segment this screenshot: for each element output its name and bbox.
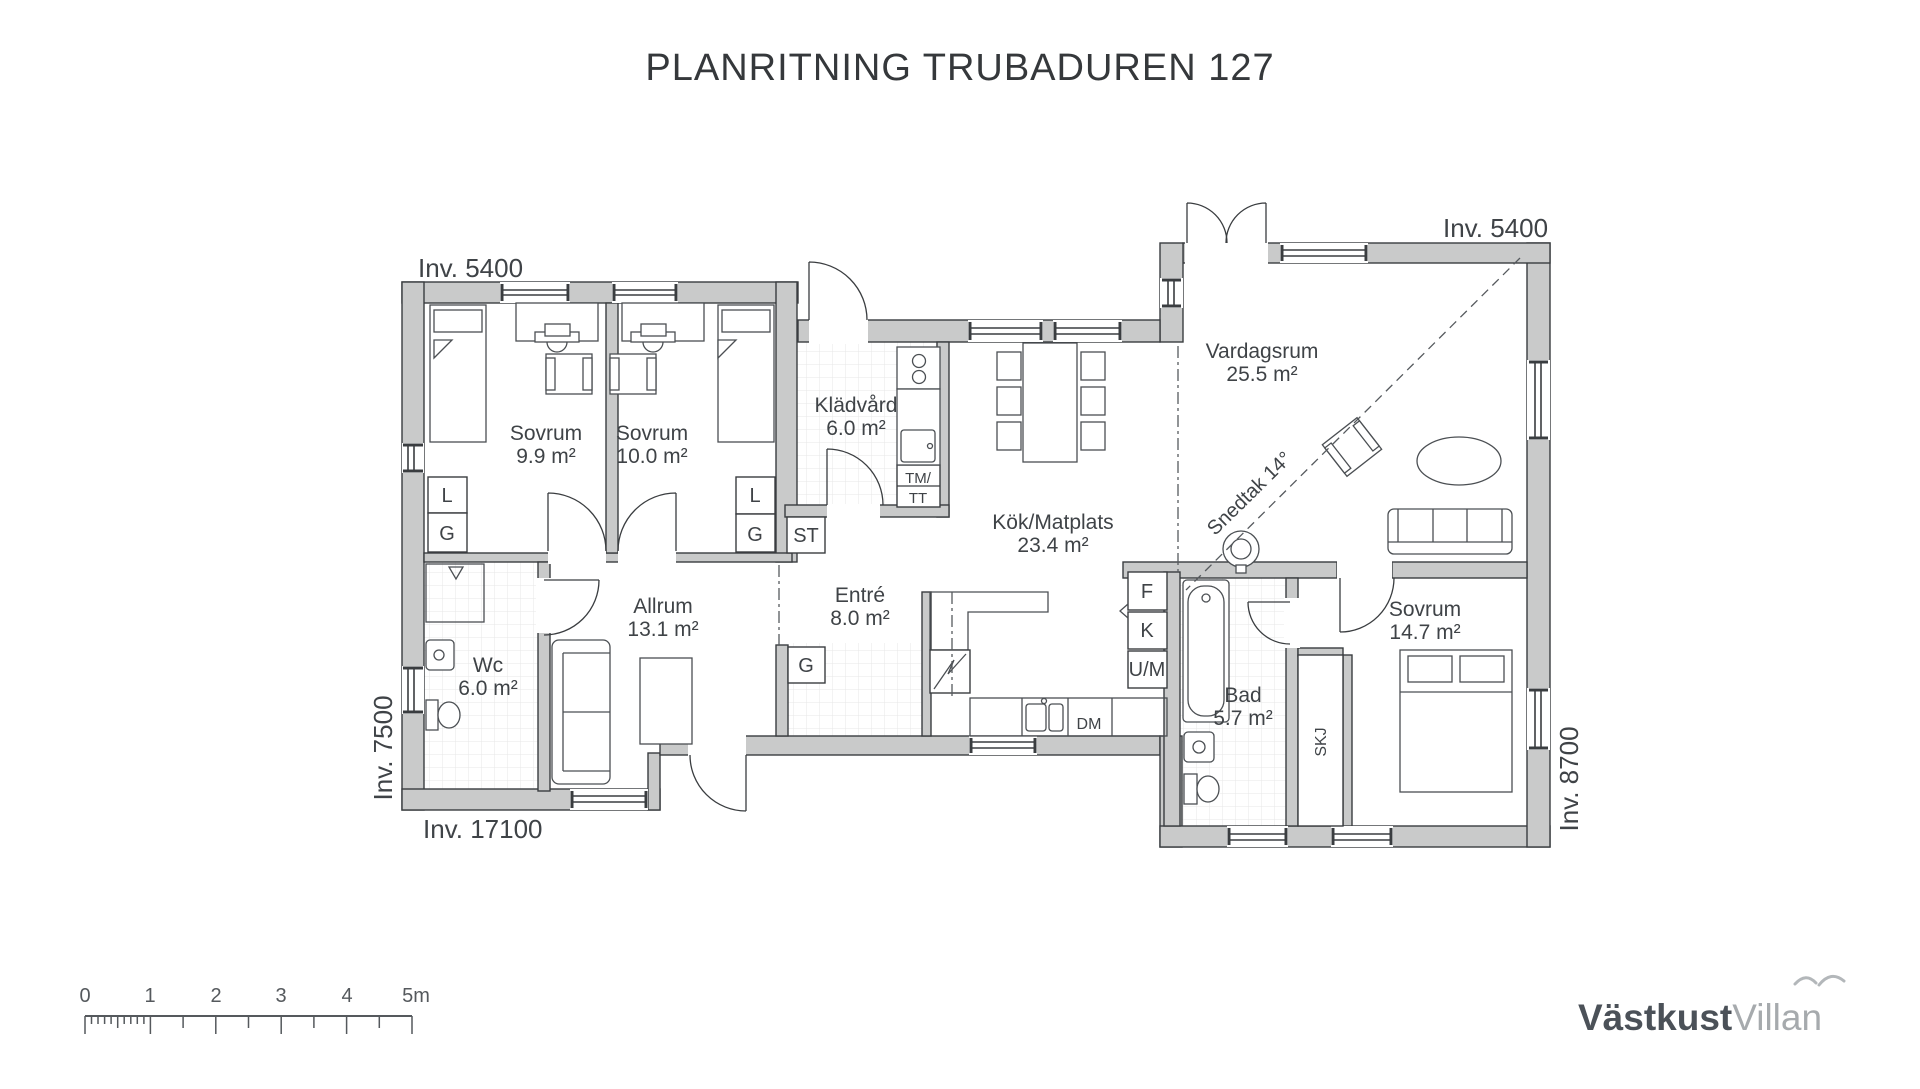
- toilet-icon: [1184, 774, 1219, 804]
- garden-door-icon: [690, 755, 746, 811]
- armchair-icon: [1322, 418, 1381, 477]
- bathtub-icon: [1183, 580, 1229, 722]
- closet-label: G: [747, 524, 763, 546]
- toilet-icon: [426, 700, 460, 730]
- dishwasher-label: DM: [1077, 716, 1102, 733]
- entrance-door-icon: [809, 262, 867, 320]
- sofa-icon: [552, 640, 610, 784]
- bedroom-door-icon: [618, 493, 676, 551]
- wc-door-icon: [544, 580, 599, 635]
- dim-right: Inv. 8700: [1554, 726, 1584, 831]
- closet-label: G: [439, 523, 455, 545]
- bedroom-door-icon: [1340, 578, 1394, 632]
- scale-label: 2: [210, 985, 221, 1007]
- washbasin-icon: [1184, 732, 1214, 762]
- scale-bar: 0 1 2 3 4 5m: [79, 985, 429, 1034]
- room-area: 8.0 m²: [830, 607, 890, 630]
- scale-label: 4: [341, 985, 352, 1007]
- french-doors-icon: [1187, 203, 1266, 243]
- room-area: 10.0 m²: [616, 445, 687, 468]
- scale-label: 5m: [402, 985, 430, 1007]
- freezer-label: F: [1141, 581, 1153, 603]
- closet-label: L: [441, 485, 452, 507]
- logo-bold-part: Västkust: [1578, 997, 1732, 1038]
- oval-table-icon: [1417, 437, 1501, 485]
- room-area: 25.5 m²: [1226, 363, 1297, 386]
- room-label: Sovrum: [616, 422, 688, 445]
- kitchen-peninsula-icon: [930, 592, 1048, 650]
- scale-label: 0: [79, 985, 90, 1007]
- logo-light-part: Villan: [1732, 997, 1822, 1038]
- scale-label: 3: [275, 985, 286, 1007]
- floorplan-page: PLANRITNING TRUBADUREN 127: [0, 0, 1920, 1089]
- armchair-icon: [546, 354, 592, 394]
- logo-text: VästkustVillan: [1578, 997, 1822, 1038]
- laundry-sink-icon: [897, 347, 940, 389]
- room-area: 6.0 m²: [458, 677, 518, 700]
- room-area: 6.0 m²: [826, 417, 886, 440]
- room-label: Wc: [473, 654, 503, 677]
- room-area: 9.9 m²: [516, 445, 576, 468]
- bed-icon: [430, 305, 486, 442]
- room-label: Bad: [1224, 684, 1261, 707]
- room-area: 14.7 m²: [1389, 621, 1460, 644]
- sliding-wardrobe-label: SKJ: [1313, 727, 1330, 756]
- room-label: Allrum: [633, 595, 693, 618]
- scale-label: 1: [144, 985, 155, 1007]
- armchair-icon: [610, 354, 656, 394]
- bed-icon: [718, 305, 774, 442]
- brand-logo: VästkustVillan: [1578, 976, 1844, 1038]
- room-area: 23.4 m²: [1017, 534, 1088, 557]
- door-hinge-chevron-icon: [1120, 604, 1128, 618]
- room-label: Kök/Matplats: [992, 511, 1113, 534]
- bird-icon: [1795, 976, 1844, 985]
- room-label: Sovrum: [510, 422, 582, 445]
- dim-left: Inv. 7500: [368, 695, 398, 800]
- fridge-label: K: [1140, 620, 1154, 642]
- closet-label: L: [749, 485, 760, 507]
- room-area: 5.7 m²: [1213, 707, 1273, 730]
- dim-bottom-left: Inv. 17100: [423, 814, 543, 844]
- oven-micro-label: U/M: [1129, 659, 1166, 681]
- bedroom-door-icon: [548, 493, 606, 551]
- desk-chair-icon: [516, 303, 598, 352]
- dryer-label: TT: [909, 490, 927, 507]
- desk-chair-icon: [622, 303, 704, 352]
- room-label: Sovrum: [1389, 598, 1461, 621]
- double-bed-icon: [1400, 650, 1512, 792]
- room-label: Vardagsrum: [1206, 340, 1319, 363]
- floorplan-drawing: PLANRITNING TRUBADUREN 127: [0, 0, 1920, 1089]
- washer-label: TM/: [905, 470, 932, 487]
- room-area: 13.1 m²: [627, 618, 698, 641]
- coffee-table-icon: [640, 658, 692, 744]
- room-label: Klädvård: [815, 394, 898, 417]
- dining-table-icon: [997, 343, 1105, 462]
- room-label: Entré: [835, 584, 885, 607]
- kitchen-counter-icon: [970, 698, 1167, 736]
- chimney-icon: [930, 650, 970, 693]
- sofa-icon: [1388, 509, 1512, 554]
- page-title: PLANRITNING TRUBADUREN 127: [645, 47, 1274, 89]
- dim-top-left: Inv. 5400: [418, 253, 523, 283]
- closet-label: G: [798, 655, 814, 677]
- closet-label: ST: [793, 525, 819, 547]
- dim-top-right: Inv. 5400: [1443, 213, 1548, 243]
- washbasin-icon: [426, 640, 454, 670]
- laundry-counter-icon: [897, 389, 940, 465]
